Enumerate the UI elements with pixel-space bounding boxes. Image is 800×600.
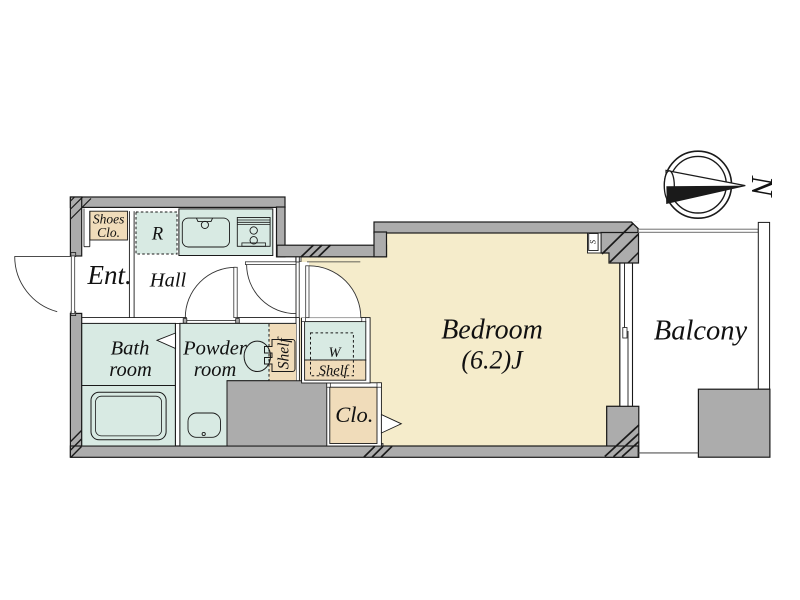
- svg-text:room: room: [194, 359, 237, 381]
- svg-text:R: R: [151, 225, 163, 245]
- svg-text:Bath: Bath: [111, 338, 150, 360]
- svg-text:(6.2)J: (6.2)J: [461, 346, 524, 375]
- svg-text:Bedroom: Bedroom: [441, 315, 543, 346]
- svg-text:Clo.: Clo.: [97, 225, 120, 240]
- svg-text:N: N: [745, 175, 780, 199]
- svg-text:Balcony: Balcony: [654, 316, 748, 347]
- svg-text:Clo.: Clo.: [335, 402, 373, 427]
- svg-text:Hall: Hall: [149, 270, 187, 292]
- svg-text:W: W: [328, 345, 342, 361]
- svg-text:Powder: Powder: [182, 338, 248, 360]
- svg-text:Ent.: Ent.: [86, 260, 131, 290]
- svg-text:Shelf: Shelf: [319, 363, 350, 379]
- svg-text:room: room: [109, 359, 152, 381]
- svg-text:S: S: [587, 239, 597, 244]
- svg-text:Shelf: Shelf: [276, 336, 293, 370]
